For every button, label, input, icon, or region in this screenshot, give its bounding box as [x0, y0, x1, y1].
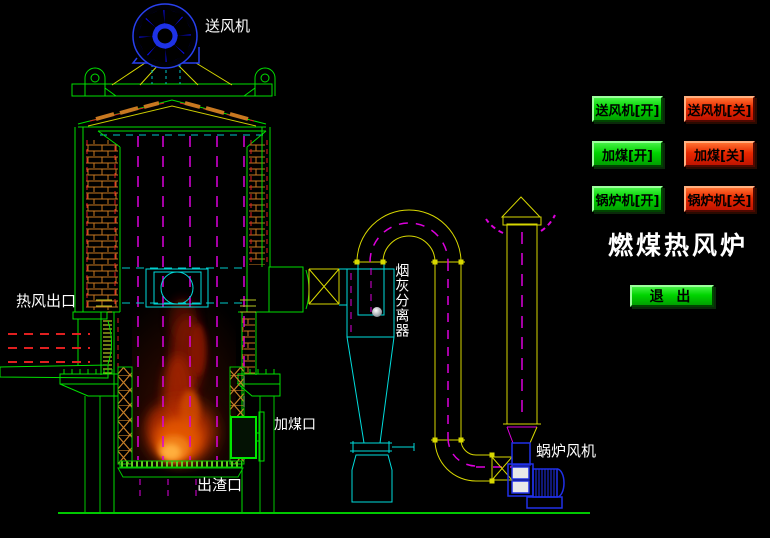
- exit-button[interactable]: 退 出: [630, 285, 714, 307]
- coal-feed-port-label: 加煤口: [274, 418, 316, 433]
- chimney-cap: [502, 197, 540, 217]
- funnel-transition: [507, 427, 537, 443]
- hot-air-outlet-label: 热风出口: [16, 293, 76, 310]
- boiler-on-button[interactable]: 锅炉机[开]: [592, 186, 663, 212]
- flue-gas-flow: [370, 223, 512, 467]
- coal-feed-on-button[interactable]: 加煤[开]: [592, 141, 663, 167]
- boiler-fan-label: 蜗炉风机: [536, 443, 596, 460]
- blast-fan-label: 送风机: [205, 18, 250, 35]
- boiler-off-button[interactable]: 锅炉机[关]: [684, 186, 755, 212]
- expansion-joint: [492, 457, 512, 480]
- ash-container: [352, 455, 392, 502]
- coal-feed-door: [231, 412, 264, 461]
- float-ball: [372, 307, 382, 317]
- furnace-diagram: [0, 0, 770, 538]
- u-bend-pipe: [353, 210, 512, 484]
- chimney: [486, 197, 555, 443]
- pipe-flange-nodes: [355, 260, 495, 484]
- page-title: 燃煤热风炉: [608, 226, 748, 262]
- hmi-screen: 送风机 热风出口 烟灰分离器 加煤口 出渣口 蜗炉风机 送风机[开] 送风机[关…: [0, 0, 770, 538]
- ash-separator-label: 烟灰分离器: [393, 263, 408, 347]
- hot-air-outlet-duct: [0, 312, 112, 378]
- ash-valve: [350, 441, 414, 453]
- slag-outlet-label: 出渣口: [197, 477, 242, 494]
- blast-fan-on-button[interactable]: 送风机[开]: [592, 96, 663, 122]
- blast-fan-off-button[interactable]: 送风机[关]: [684, 96, 755, 122]
- combustion-chamber-fire: [132, 298, 236, 462]
- flue-duct: [269, 267, 347, 312]
- coal-feed-off-button[interactable]: 加煤[关]: [684, 141, 755, 167]
